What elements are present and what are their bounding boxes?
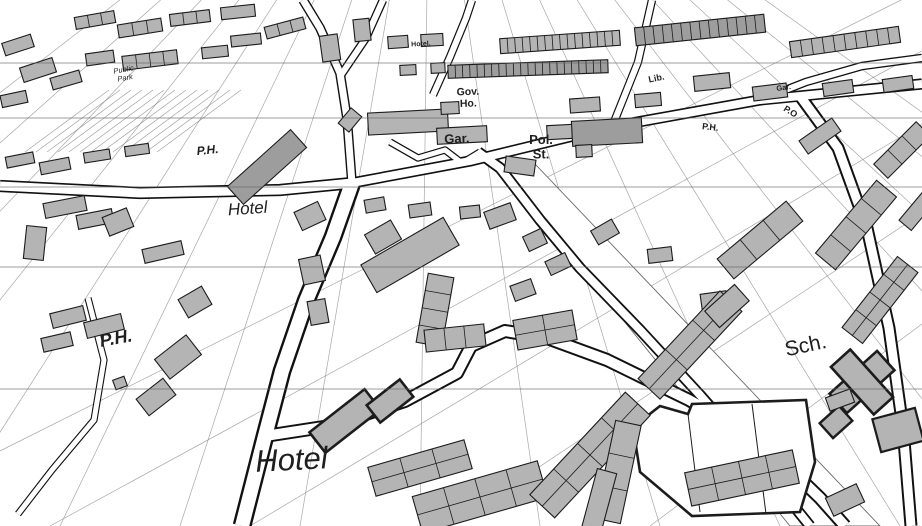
map-label-ph-right: P.H. [702,121,719,133]
map-label-hotel-mid: Hotel [227,198,269,220]
building [23,226,46,261]
map-label-gar: Gar. [444,131,470,147]
map-label-hotel-bottom: Hotel [254,440,329,479]
perspective-town-map: PublicParkHotel.Gov.Ho.Lib.Gar.P.OP.H.Ga… [0,0,922,526]
building-footprint [364,197,386,213]
building-footprint [23,226,46,261]
building [364,197,386,213]
map-svg: PublicParkHotel.Gov.Ho.Lib.Gar.P.OP.H.Ga… [0,0,922,526]
building [431,63,446,74]
building [459,205,480,219]
building-footprint [693,73,730,92]
building-footprint [231,33,262,47]
building-footprint [576,145,593,158]
building-footprint [504,156,536,176]
building [319,34,340,62]
map-viewport: PublicParkHotel.Gov.Ho.Lib.Gar.P.OP.H.Ga… [0,0,922,526]
building [647,247,673,264]
building [388,35,409,48]
building-footprint [408,202,432,218]
building [571,118,642,147]
building-footprint [571,118,642,147]
building-footprint [307,299,329,326]
building [307,299,329,326]
building-footprint [441,102,460,115]
building-footprint [459,205,480,219]
building-footprint [400,65,417,76]
building [634,92,661,107]
building-footprint [319,34,340,62]
map-label-ph-left: P.H. [196,142,219,158]
building [504,156,536,176]
building [693,73,730,92]
map-label-gov-ho: Gov.Ho. [456,86,479,111]
building [353,18,371,42]
building [441,102,460,115]
building [408,202,432,218]
building-footprint [570,97,601,113]
building [570,97,601,113]
building [299,255,326,285]
building-footprint [634,92,661,107]
map-label-hotel-top: Hotel. [411,40,431,48]
building [576,145,593,158]
building [400,65,417,76]
building [231,33,262,47]
building-footprint [299,255,326,285]
building-footprint [388,35,409,48]
building-footprint [201,45,228,59]
building-footprint [647,247,673,264]
building [201,45,228,59]
building-footprint [353,18,371,42]
building-footprint [431,63,446,74]
